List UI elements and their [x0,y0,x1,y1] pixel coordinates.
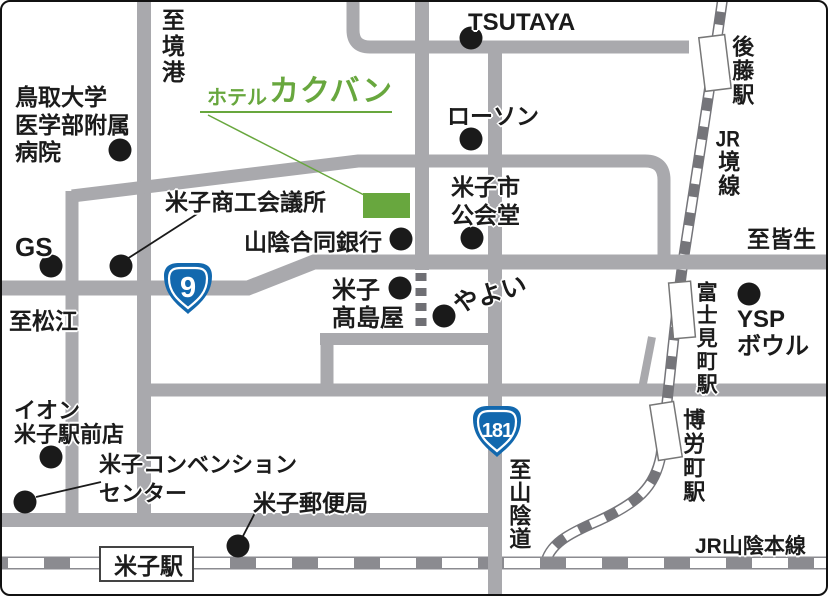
label-aeon-line2: 米子駅前店 [14,423,124,447]
label-hotel-prefix: ホテル [207,87,267,110]
label-goto-station: 後藤駅 [729,35,754,107]
label-aeon-line1: イオン [14,399,124,423]
label-ysp-bowl: YSP ボウル [737,307,809,361]
label-public-hall-line1: 米子市 [451,173,520,201]
label-convention-line1: 米子コンベンション [99,451,297,480]
poi-dot-post-office [227,535,250,558]
label-tsutaya: TSUTAYA [468,9,575,37]
label-aeon: イオン 米子駅前店 [14,399,124,447]
label-sakai-line: 境線 [715,150,740,198]
label-hotel-name: カクバン [269,75,393,110]
label-hospital: 鳥取大学 医学部附属 病院 [15,84,130,167]
poi-dot-public-hall [461,227,484,250]
label-public-hall-line2: 公会堂 [451,201,520,229]
label-takashimaya: 米子 髙島屋 [332,277,404,334]
label-to-sakaiminato: 至境港 [158,8,184,86]
label-bank: 山陰合同銀行 [244,229,382,255]
label-ysp-line2: ボウル [737,334,809,361]
label-fujimicho-station: 富士見町駅 [693,281,717,396]
label-jr-prefix: JR [715,128,740,150]
poi-dot-ysp [738,283,761,306]
hotel-pointer-line [208,115,366,196]
poi-dot-lawson [460,128,483,151]
route-181-number: 181 [482,420,513,442]
fujimicho-station-box [669,281,696,339]
hotel-marker [363,193,410,218]
poi-dot-chamber [110,255,133,278]
label-ysp-line1: YSP [737,307,809,334]
label-to-sanindo: 至山陰道 [506,458,531,550]
poi-dot-yayoi [433,305,456,328]
label-gs: GS [15,233,53,263]
access-map: 9 181 至境港 鳥取大学 医学部附属 病院 TSUTAYA ホテル カクバン… [0,0,828,596]
label-takashimaya-line1: 米子 [332,277,404,305]
label-bakurocho-station: 博労町駅 [680,408,705,504]
poi-dot-convention [14,491,37,514]
label-lawson: ローソン [447,103,539,129]
label-public-hall: 米子市 公会堂 [451,173,520,229]
label-hospital-line3: 病院 [15,139,130,167]
poi-dot-aeon [40,446,63,469]
route-9-badge: 9 [164,263,212,314]
label-hospital-line1: 鳥取大学 [15,84,130,112]
route-181-badge: 181 [473,406,521,457]
label-to-matsue: 至松江 [9,308,78,334]
route-9-number: 9 [180,272,196,304]
label-takashimaya-line2: 髙島屋 [332,305,404,333]
goto-station-box [699,35,731,92]
label-jr-sanin-main-line: JR山陰本線 [695,535,806,559]
label-to-kaike: 至皆生 [747,226,816,252]
poi-dot-bank [390,228,413,251]
label-post-office: 米子郵便局 [253,490,368,516]
label-jr-sakai-line: JR境線 [715,128,740,198]
label-chamber-of-commerce: 米子商工会議所 [165,189,326,215]
bakurocho-station-box [650,401,682,460]
label-yonago-station: 米子駅 [102,549,195,583]
label-hospital-line2: 医学部附属 [15,112,130,140]
